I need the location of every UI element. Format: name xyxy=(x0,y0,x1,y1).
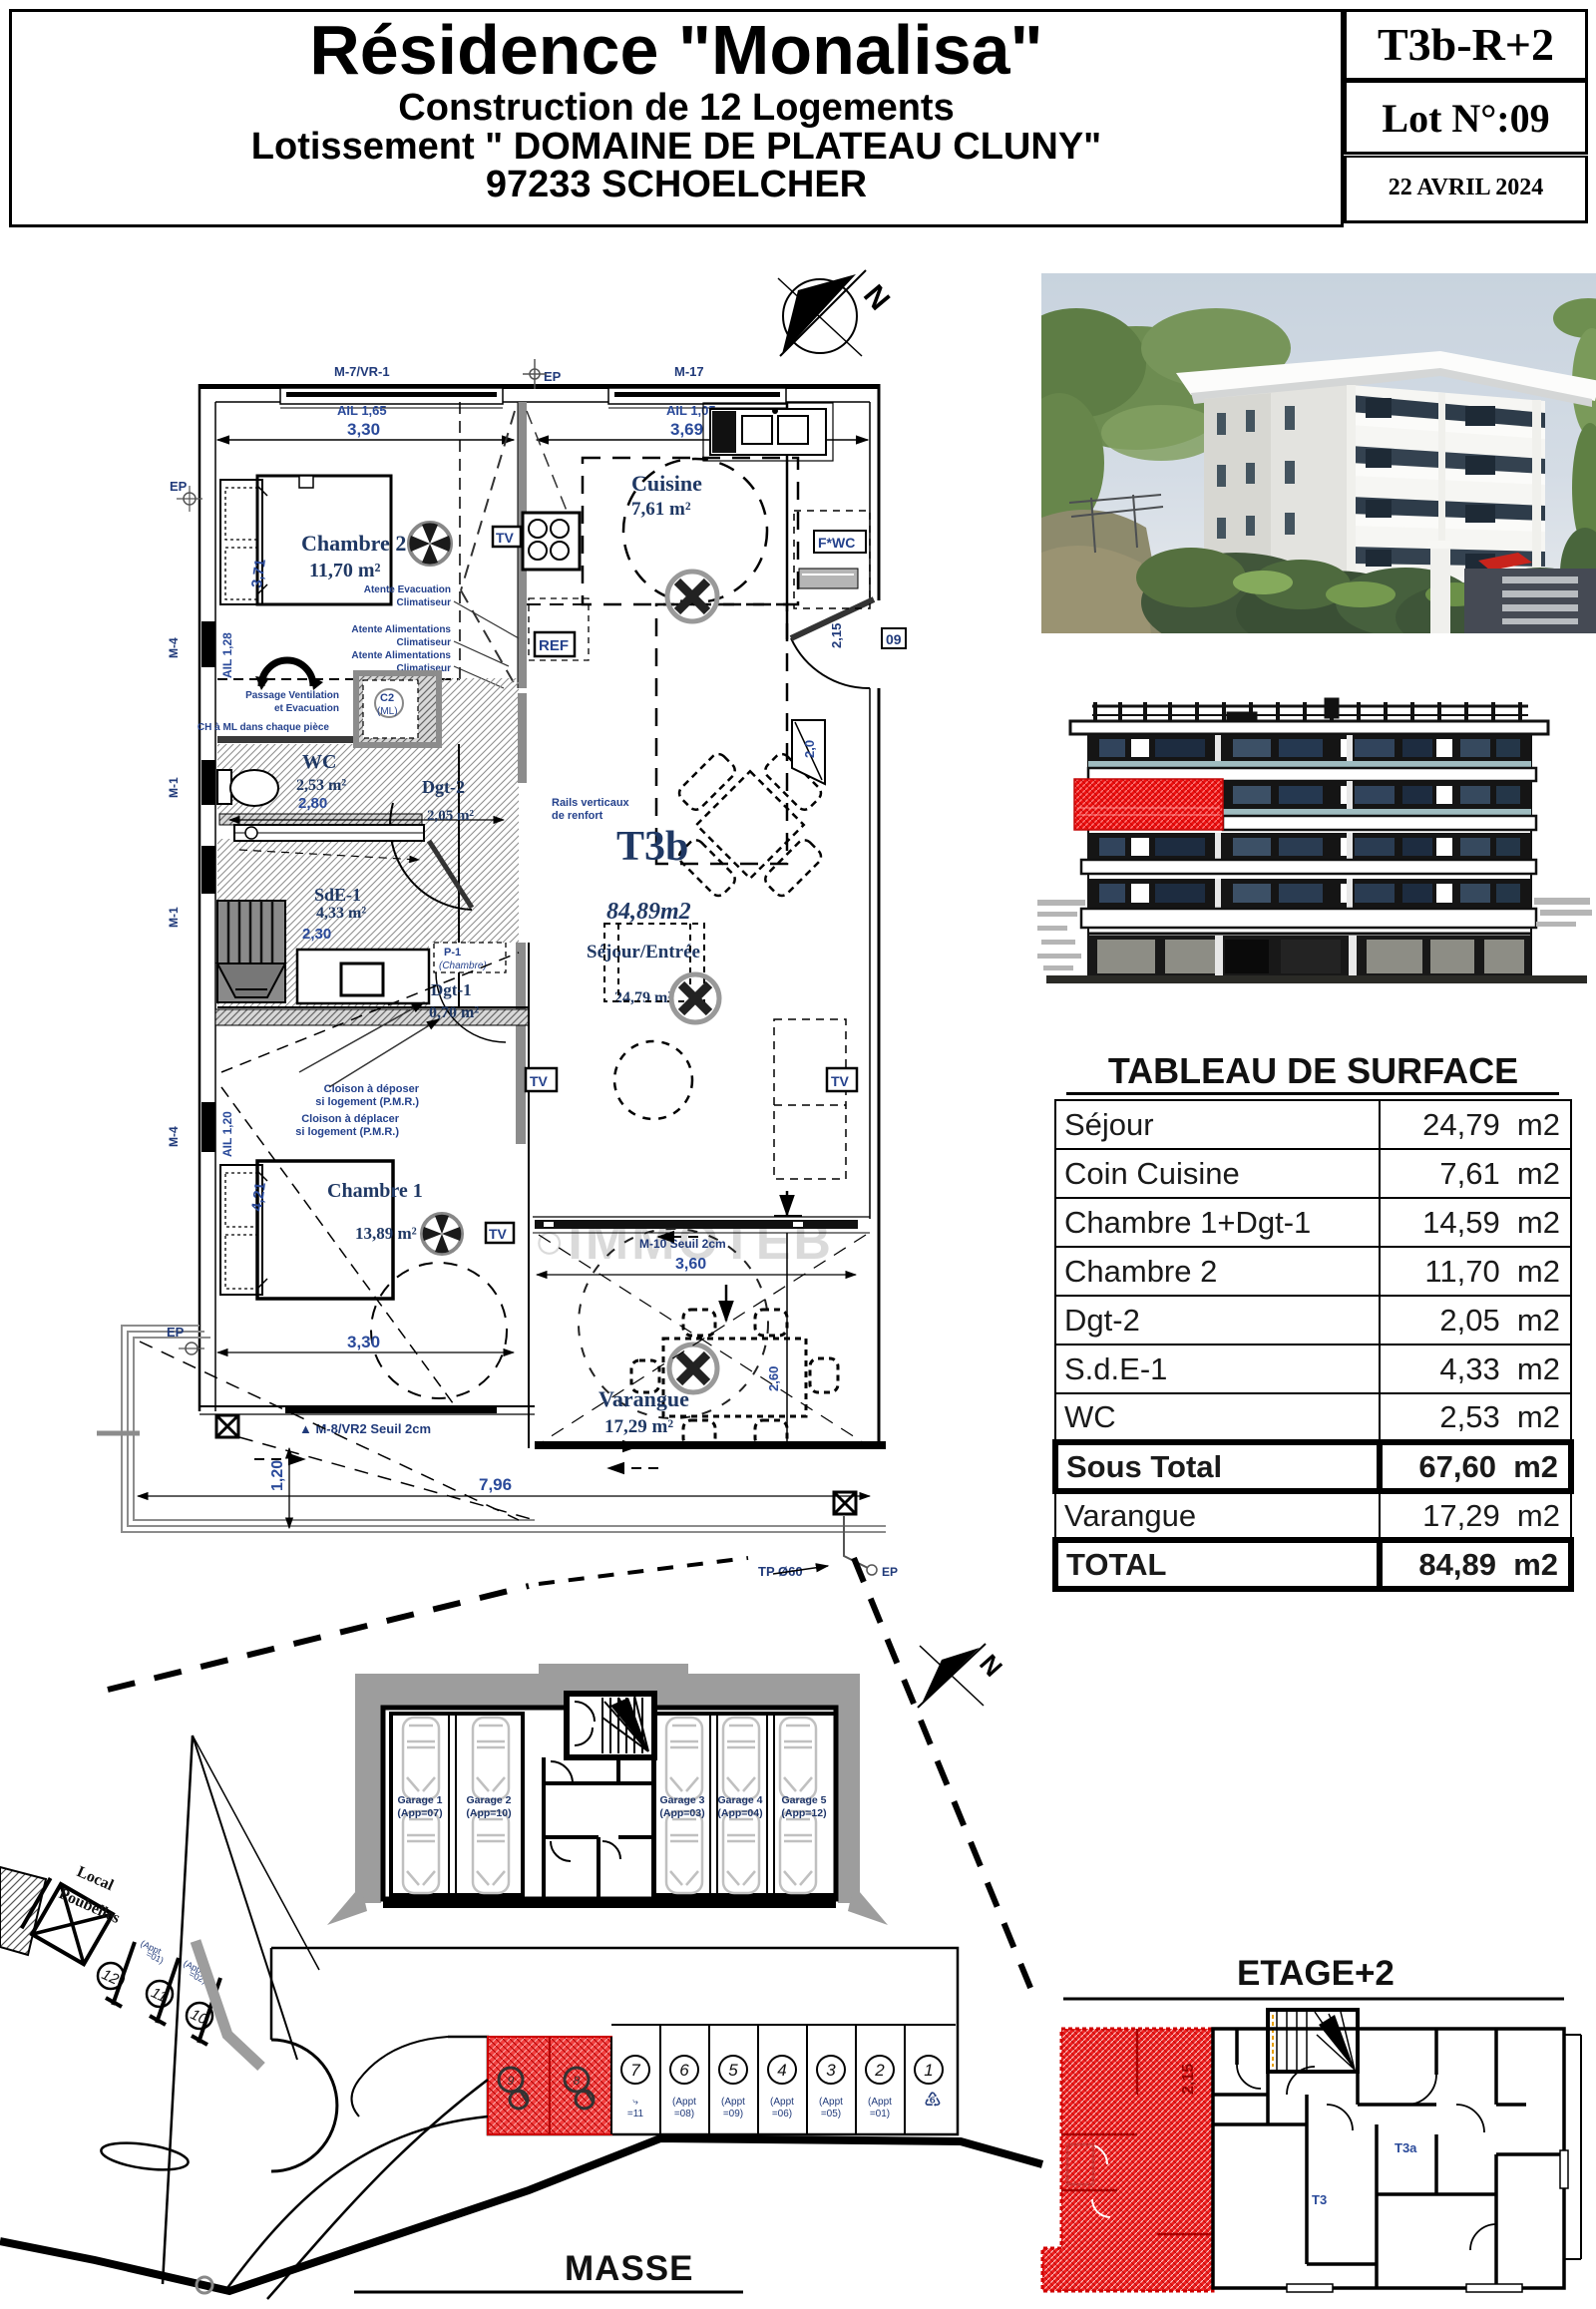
svg-text:WC: WC xyxy=(302,751,336,773)
svg-text:Local: Local xyxy=(74,1863,116,1894)
svg-text:4,33 m²: 4,33 m² xyxy=(316,905,366,922)
svg-text:=05): =05) xyxy=(821,2109,841,2119)
svg-text:2,15: 2,15 xyxy=(829,623,844,648)
svg-text:AIL 1,20: AIL 1,20 xyxy=(220,1111,234,1157)
svg-text:(ML): (ML) xyxy=(377,706,398,717)
svg-text:⤷: ⤷ xyxy=(632,2097,638,2108)
svg-text:Garage 5: Garage 5 xyxy=(782,1794,827,1806)
svg-text:AIL 1,05: AIL 1,05 xyxy=(666,403,716,418)
svg-text:(Appt: (Appt xyxy=(721,2097,745,2108)
svg-text:♸: ♸ xyxy=(924,2090,942,2112)
svg-text:Cuisine: Cuisine xyxy=(631,471,702,496)
svg-text:=08): =08) xyxy=(674,2109,694,2119)
svg-text:3,71: 3,71 xyxy=(248,558,269,588)
svg-text:Cloison à déplacer: Cloison à déplacer xyxy=(301,1113,400,1125)
svg-text:2,30: 2,30 xyxy=(302,926,331,943)
svg-text:2,05 m²: 2,05 m² xyxy=(427,808,474,824)
svg-text:7,61 m²: 7,61 m² xyxy=(631,499,691,520)
svg-text:2,15: 2,15 xyxy=(1180,2064,1197,2095)
svg-text:M-17: M-17 xyxy=(674,364,704,379)
svg-text:P-1: P-1 xyxy=(444,947,461,959)
svg-text:Climatiseur: Climatiseur xyxy=(397,637,452,648)
svg-text:Chambre 2: Chambre 2 xyxy=(301,531,406,556)
svg-text:13,89 m²: 13,89 m² xyxy=(355,1224,417,1243)
svg-text:=06): =06) xyxy=(772,2109,792,2119)
svg-text:17,29 m²: 17,29 m² xyxy=(604,1416,673,1437)
svg-text:EP: EP xyxy=(167,1325,185,1340)
svg-text:et Evacuation: et Evacuation xyxy=(274,703,339,714)
svg-text:4: 4 xyxy=(777,2061,786,2080)
svg-text:M-4: M-4 xyxy=(167,1126,181,1147)
svg-text:AIL 1,65: AIL 1,65 xyxy=(337,403,387,418)
svg-text:7: 7 xyxy=(630,2061,640,2080)
svg-text:TV: TV xyxy=(530,1073,549,1089)
svg-text:TV: TV xyxy=(489,1226,508,1242)
svg-text:si logement (P.M.R.): si logement (P.M.R.) xyxy=(315,1096,419,1108)
svg-text:T3b: T3b xyxy=(616,824,688,870)
svg-text:▲ M-8/VR2 Seuil 2cm: ▲ M-8/VR2 Seuil 2cm xyxy=(299,1421,431,1436)
svg-text:2,53 m²: 2,53 m² xyxy=(296,777,346,794)
svg-text:7,96: 7,96 xyxy=(479,1475,512,1494)
svg-text:Dgt-1: Dgt-1 xyxy=(431,980,472,999)
svg-text:EP: EP xyxy=(170,479,188,494)
svg-text:3: 3 xyxy=(826,2061,836,2080)
svg-text:1,20: 1,20 xyxy=(269,1460,286,1491)
svg-text:=01): =01) xyxy=(870,2109,890,2119)
svg-text:(App=07): (App=07) xyxy=(397,1807,442,1819)
svg-text:(App=03): (App=03) xyxy=(659,1807,704,1819)
svg-text:Varangue: Varangue xyxy=(598,1386,689,1411)
svg-text:2,80: 2,80 xyxy=(298,795,327,812)
svg-text:2: 2 xyxy=(874,2061,885,2080)
svg-text:M-4: M-4 xyxy=(167,637,181,658)
svg-text:Dgt-2: Dgt-2 xyxy=(422,777,465,797)
svg-text:1: 1 xyxy=(924,2061,933,2080)
svg-text:11,70 m²: 11,70 m² xyxy=(309,560,381,581)
svg-text:3,69: 3,69 xyxy=(670,420,703,439)
svg-text:0,70 m²: 0,70 m² xyxy=(429,1004,479,1021)
svg-text:84,89m2: 84,89m2 xyxy=(606,899,691,925)
svg-text:(Appt: (Appt xyxy=(770,2097,794,2108)
svg-text:M-1: M-1 xyxy=(167,777,181,798)
svg-text:T3a: T3a xyxy=(1395,2140,1417,2155)
svg-text:F*WC: F*WC xyxy=(818,535,855,551)
svg-text:TV: TV xyxy=(831,1073,850,1089)
svg-text:M-7/VR-1: M-7/VR-1 xyxy=(334,364,390,379)
svg-text:EP: EP xyxy=(544,369,562,384)
svg-text:24,79 m²: 24,79 m² xyxy=(614,989,672,1006)
svg-text:2,60: 2,60 xyxy=(766,1366,781,1391)
svg-text:=11: =11 xyxy=(627,2109,644,2119)
svg-text:=09): =09) xyxy=(723,2109,743,2119)
svg-text:MASSE: MASSE xyxy=(565,2249,693,2288)
svg-text:Garage 2: Garage 2 xyxy=(467,1794,512,1806)
svg-text:Passage Ventilation: Passage Ventilation xyxy=(245,690,339,701)
svg-text:(Appt: (Appt xyxy=(868,2097,892,2108)
svg-text:(Appt: (Appt xyxy=(672,2097,696,2108)
svg-text:T3: T3 xyxy=(1312,2192,1327,2207)
svg-text:9: 9 xyxy=(508,2074,515,2088)
svg-text:5: 5 xyxy=(728,2061,738,2080)
svg-text:2,0: 2,0 xyxy=(802,740,817,758)
svg-text:4,21: 4,21 xyxy=(248,1181,269,1212)
svg-text:3,30: 3,30 xyxy=(347,1333,380,1351)
svg-text:N: N xyxy=(857,279,896,317)
svg-text:de renfort: de renfort xyxy=(552,810,603,822)
svg-text:=01): =01) xyxy=(145,1949,166,1966)
svg-text:C2: C2 xyxy=(380,692,394,704)
svg-text:Atente Alimentations: Atente Alimentations xyxy=(351,650,451,661)
svg-text:si logement (P.M.R.): si logement (P.M.R.) xyxy=(295,1126,399,1138)
svg-text:3,60: 3,60 xyxy=(675,1256,706,1273)
svg-text:N: N xyxy=(974,1649,1008,1683)
svg-text:Cloison à déposer: Cloison à déposer xyxy=(324,1083,420,1095)
svg-text:REF: REF xyxy=(539,637,569,654)
svg-text:Garage 1: Garage 1 xyxy=(398,1794,443,1806)
svg-text:M-10 Seuil 2cm: M-10 Seuil 2cm xyxy=(639,1237,726,1251)
svg-text:ETAGE+2: ETAGE+2 xyxy=(1237,1954,1395,1993)
svg-text:3,30: 3,30 xyxy=(347,420,380,439)
svg-text:Garage 3: Garage 3 xyxy=(660,1794,705,1806)
svg-text:(App=04): (App=04) xyxy=(717,1807,762,1819)
svg-text:(App=10): (App=10) xyxy=(466,1807,511,1819)
svg-text:M-1: M-1 xyxy=(167,907,181,928)
svg-text:8: 8 xyxy=(574,2074,581,2088)
svg-text:AIL 1,28: AIL 1,28 xyxy=(220,632,234,678)
svg-text:Climatiseur: Climatiseur xyxy=(397,597,452,608)
svg-text:Rails verticaux: Rails verticaux xyxy=(552,797,630,809)
svg-text:Atente Alimentations: Atente Alimentations xyxy=(351,624,451,635)
svg-text:CH à ML dans chaque pièce: CH à ML dans chaque pièce xyxy=(198,722,330,733)
svg-text:6: 6 xyxy=(679,2061,689,2080)
svg-text:Chambre 1: Chambre 1 xyxy=(327,1180,423,1202)
svg-text:TV: TV xyxy=(496,530,515,546)
svg-text:Atente Evacuation: Atente Evacuation xyxy=(364,584,451,595)
svg-text:(App=12): (App=12) xyxy=(781,1807,826,1819)
svg-text:(Appt: (Appt xyxy=(819,2097,843,2108)
svg-text:09: 09 xyxy=(886,631,902,647)
svg-text:SdE-1: SdE-1 xyxy=(314,885,361,905)
svg-text:Garage 4: Garage 4 xyxy=(718,1794,763,1806)
svg-text:(Chambre): (Chambre) xyxy=(439,961,487,971)
